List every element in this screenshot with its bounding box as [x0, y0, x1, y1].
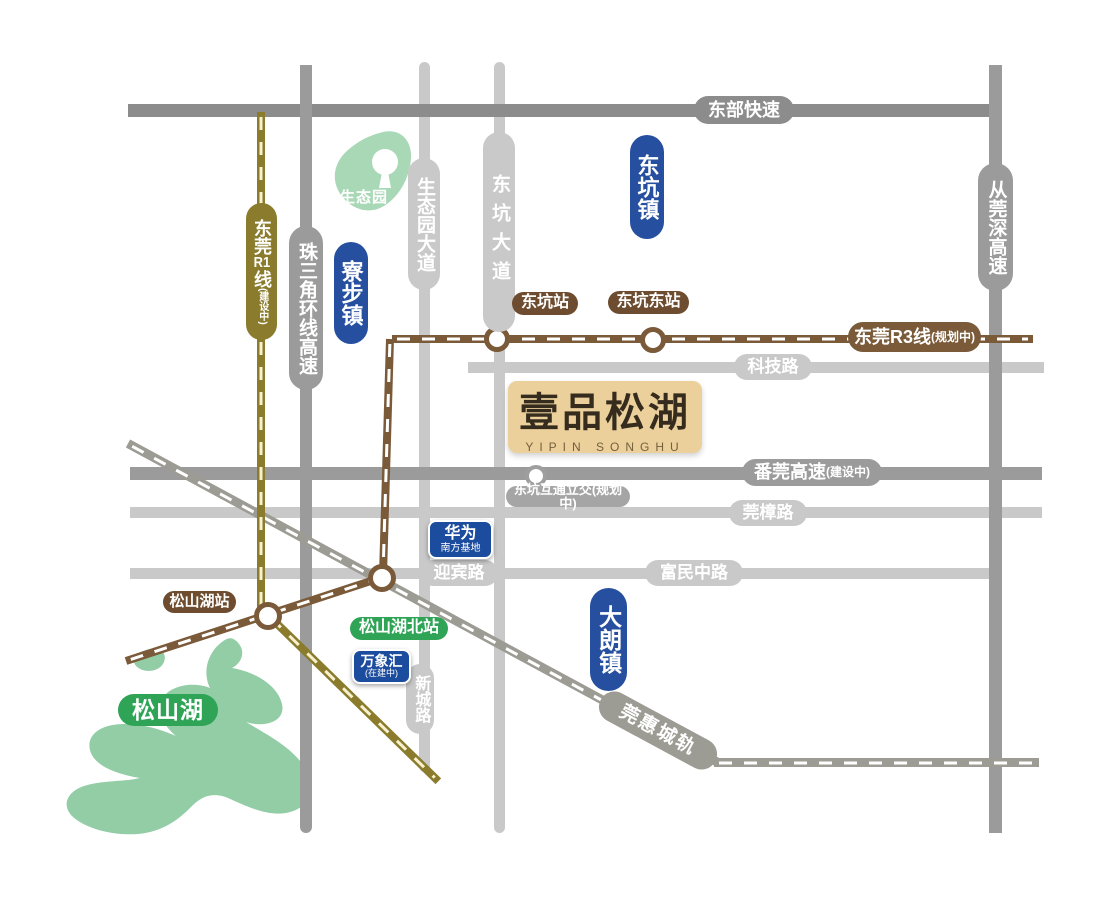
huawei-base-badge: 华为 南方基地: [428, 520, 493, 559]
shengtaiyuan-avenue-label: 生态园大道: [408, 158, 440, 290]
town-dongkeng-badge: 东坑镇: [630, 135, 664, 239]
station-dongkeng-east-badge: 东坑东站: [608, 291, 689, 314]
r3-guanhui-junction-node: [368, 564, 396, 592]
fanguan-expressway-label: 番莞高速(建设中): [742, 459, 882, 486]
station-dongkeng-badge: 东坑站: [512, 292, 578, 315]
location-map: 生态园 东部快速 从莞深高速 珠三角环线高速 番莞高速(建设中): [0, 0, 1099, 900]
r1-line-vertical: [257, 112, 265, 616]
guanhui-rail-label: 莞惠城轨: [593, 686, 722, 775]
congguanshen-expressway-label: 从莞深高速: [978, 163, 1013, 291]
interchange-label: 东坑互通立交(规划中): [506, 486, 630, 507]
guanzhang-road-label: 莞樟路: [729, 500, 807, 526]
keji-road-label: 科技路: [734, 354, 812, 380]
fanguan-expressway-road: [130, 467, 1042, 480]
dongkeng-avenue-label: 东坑大道: [483, 132, 515, 332]
songshanhu-station-node: [254, 602, 282, 630]
r3-line-label: 东莞R3线(规划中): [848, 322, 981, 352]
r1-line-label: 东莞R1线(建设中): [246, 203, 277, 340]
tree-icon: [372, 149, 398, 175]
guanhui-rail-horizontal: [714, 758, 1039, 767]
dongkeng-east-station-node: [640, 327, 666, 353]
lake-songshanhu-badge: 松山湖: [118, 694, 218, 726]
project-name: 壹品松湖: [519, 380, 691, 438]
station-songshanhu-badge: 松山湖站: [163, 591, 236, 613]
zhusanjiao-expressway-road: [300, 65, 312, 833]
project-name-en: YIPIN SONGHU: [525, 440, 684, 454]
yingbin-road-label: 迎宾路: [420, 560, 498, 586]
town-liaobu-badge: 寮步镇: [334, 242, 368, 344]
town-dalang-badge: 大朗镇: [590, 588, 627, 691]
wanxianghui-badge: 万象汇 (在建中): [352, 649, 411, 684]
r3-line-vertical: [379, 339, 394, 579]
project-yipin-songhu-marker: 壹品松湖 YIPIN SONGHU: [508, 381, 702, 453]
eco-park-label: 生态园: [340, 186, 388, 207]
fuminzhong-road-label: 富民中路: [645, 560, 743, 586]
zhusanjiao-expressway-label: 珠三角环线高速: [289, 226, 323, 390]
station-songshanhu-north-badge: 松山湖北站: [350, 617, 448, 640]
dongbu-expressway-label: 东部快速: [694, 96, 794, 124]
